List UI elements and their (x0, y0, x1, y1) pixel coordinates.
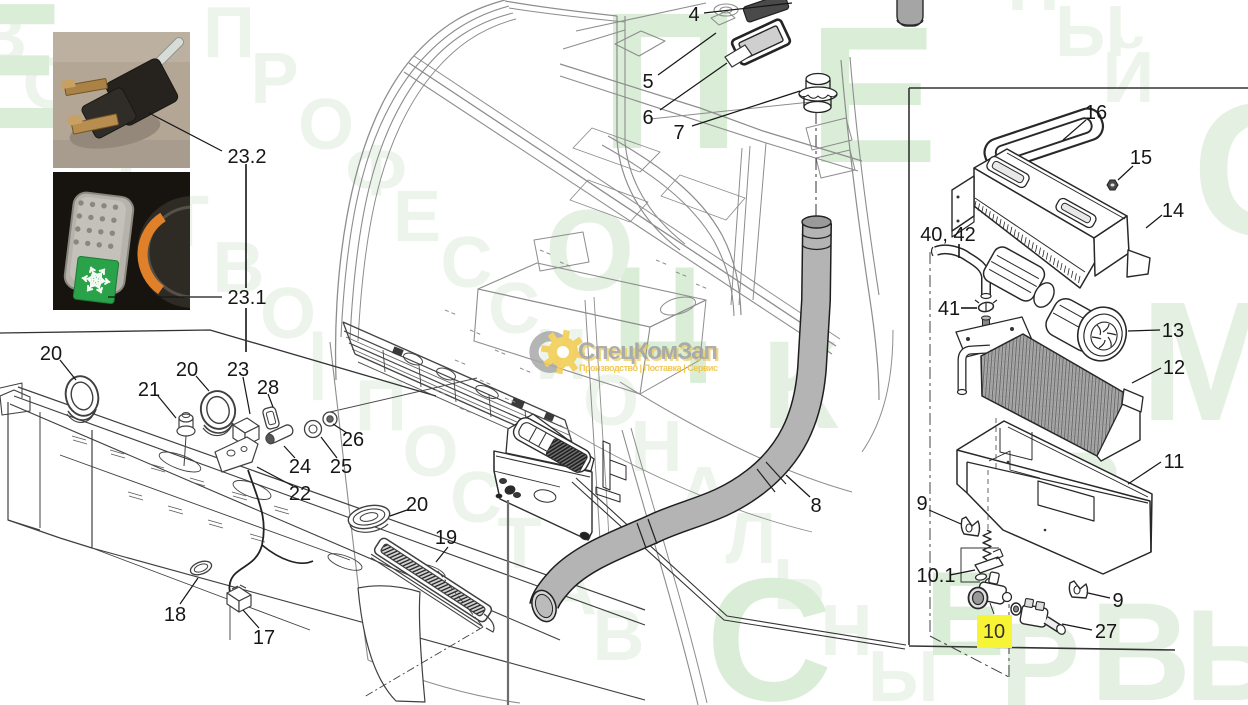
svg-text:12: 12 (1163, 357, 1185, 379)
svg-text:С: С (706, 543, 832, 705)
svg-text:17: 17 (253, 627, 275, 649)
svg-text:23.2: 23.2 (228, 146, 267, 168)
svg-text:9: 9 (1112, 590, 1123, 612)
svg-text:8: 8 (810, 495, 821, 517)
svg-text:9: 9 (916, 493, 927, 515)
svg-text:Производство | Поставка | Серв: Производство | Поставка | Сервис (579, 363, 718, 373)
svg-text:5: 5 (642, 71, 653, 93)
svg-text:4: 4 (688, 4, 699, 26)
svg-text:П: П (203, 0, 255, 73)
svg-text:26: 26 (342, 429, 364, 451)
svg-text:Н: Н (631, 407, 683, 487)
svg-text:14: 14 (1162, 200, 1184, 222)
svg-text:П: П (600, 0, 740, 190)
svg-text:25: 25 (330, 456, 352, 478)
svg-text:27: 27 (1095, 621, 1117, 643)
svg-text:10.1: 10.1 (917, 565, 956, 587)
svg-text:22: 22 (289, 483, 311, 505)
svg-text:18: 18 (164, 604, 186, 626)
svg-text:20: 20 (40, 343, 62, 365)
svg-text:19: 19 (435, 527, 457, 549)
svg-text:7: 7 (673, 122, 684, 144)
svg-text:24: 24 (289, 456, 311, 478)
svg-text:С: С (1192, 64, 1248, 276)
svg-text:20: 20 (406, 494, 428, 516)
svg-text:М: М (1140, 267, 1248, 457)
svg-text:15: 15 (1130, 147, 1152, 169)
svg-text:Р: Р (251, 39, 299, 119)
svg-text:11: 11 (1164, 451, 1185, 473)
svg-text:6: 6 (642, 107, 653, 129)
svg-text:16: 16 (1085, 102, 1107, 124)
svg-text:Ы: Ы (1185, 582, 1248, 705)
svg-text:Н: Н (1008, 0, 1060, 26)
svg-text:В: В (593, 596, 645, 676)
svg-text:13: 13 (1162, 320, 1184, 342)
svg-text:23: 23 (227, 359, 249, 381)
svg-text:23.1: 23.1 (228, 287, 267, 309)
svg-text:СпецКомЗап: СпецКомЗап (578, 338, 718, 365)
svg-text:Е: Е (393, 177, 441, 257)
svg-text:21: 21 (138, 379, 160, 401)
svg-text:41: 41 (938, 298, 960, 320)
svg-text:Е: Е (808, 0, 938, 204)
svg-text:28: 28 (257, 377, 279, 399)
svg-text:Й: Й (1103, 36, 1155, 118)
svg-text:40, 42: 40, 42 (920, 224, 976, 246)
svg-text:20: 20 (176, 359, 198, 381)
svg-text:О: О (545, 187, 634, 315)
svg-text:10: 10 (983, 621, 1005, 643)
